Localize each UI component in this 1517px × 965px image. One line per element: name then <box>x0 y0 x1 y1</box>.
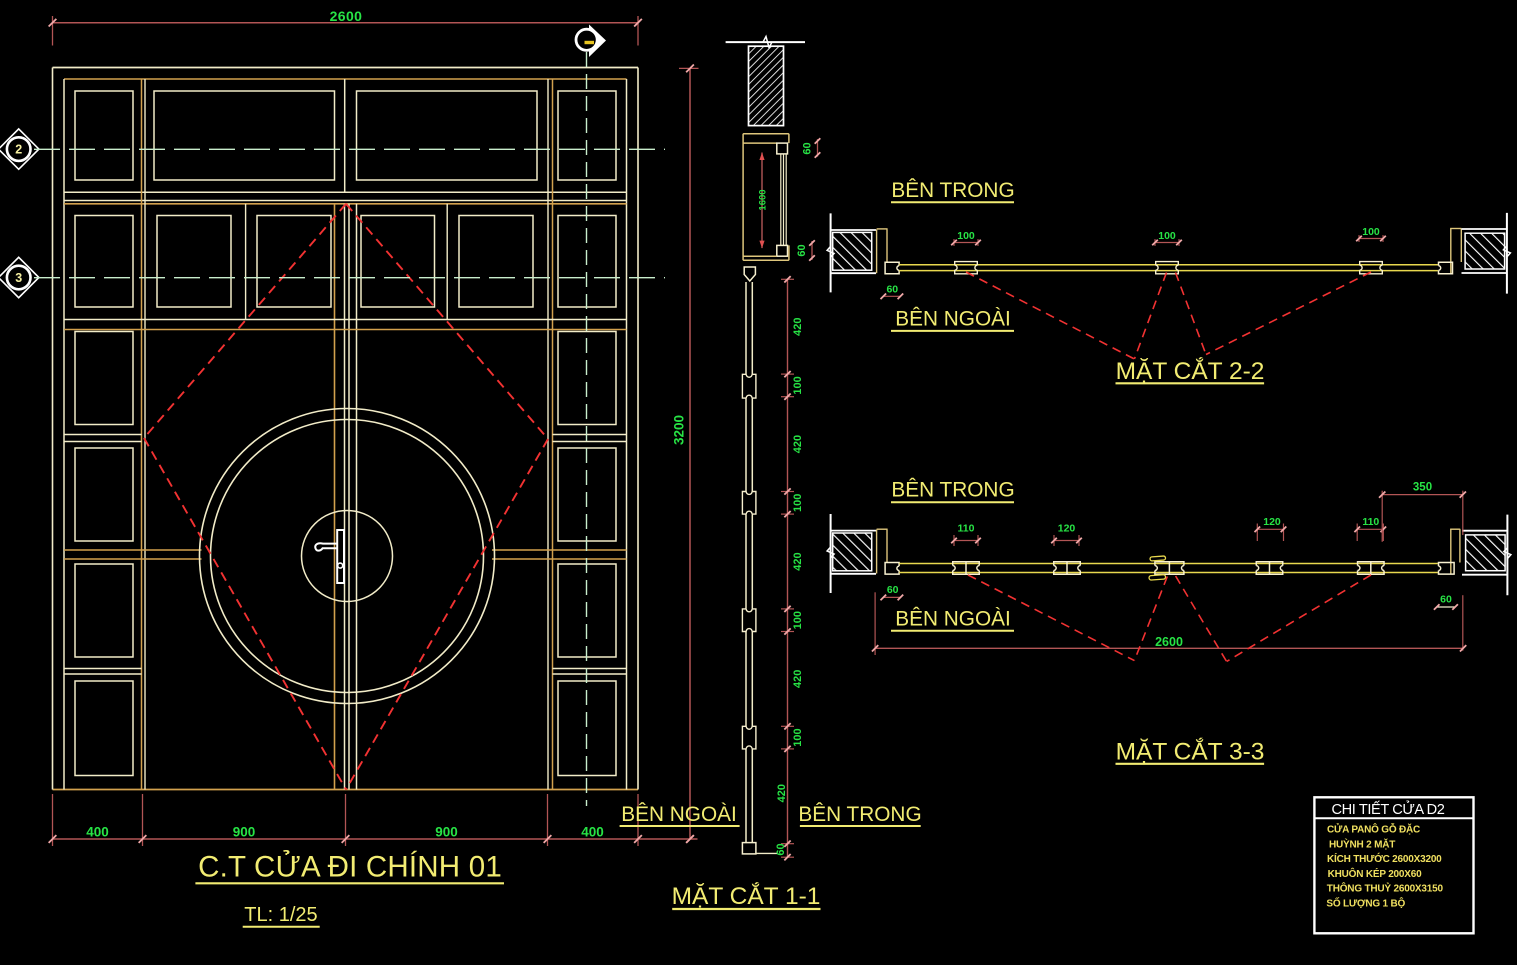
svg-text:420: 420 <box>776 784 788 802</box>
svg-text:THÔNG THUỶ 2600X3150: THÔNG THUỶ 2600X3150 <box>1327 882 1444 895</box>
svg-text:60: 60 <box>796 244 808 256</box>
svg-text:100: 100 <box>792 728 804 746</box>
svg-text:3200: 3200 <box>672 415 687 445</box>
svg-text:420: 420 <box>792 435 804 453</box>
svg-text:900: 900 <box>233 825 256 840</box>
svg-text:100: 100 <box>957 230 975 242</box>
svg-text:CHI TIẾT CỬA D2: CHI TIẾT CỬA D2 <box>1332 800 1445 818</box>
svg-text:350: 350 <box>1413 482 1432 494</box>
svg-text:C.T CỬA ĐI CHÍNH 01: C.T CỬA ĐI CHÍNH 01 <box>198 850 502 884</box>
svg-text:BÊN TRONG: BÊN TRONG <box>798 803 921 826</box>
svg-text:420: 420 <box>792 670 804 688</box>
svg-text:MẶT CẮT 2-2: MẶT CẮT 2-2 <box>1116 357 1265 385</box>
svg-text:60: 60 <box>775 843 787 855</box>
svg-text:SỐ LƯỢNG 1 BỘ: SỐ LƯỢNG 1 BỘ <box>1326 896 1405 910</box>
svg-text:BÊN TRONG: BÊN TRONG <box>891 179 1014 202</box>
svg-text:100: 100 <box>792 611 804 629</box>
svg-text:2600: 2600 <box>1155 635 1183 649</box>
svg-text:900: 900 <box>435 825 458 840</box>
svg-text:100: 100 <box>1362 226 1380 238</box>
svg-text:BÊN TRONG: BÊN TRONG <box>891 479 1014 502</box>
svg-text:100: 100 <box>792 376 804 394</box>
svg-text:100: 100 <box>1158 230 1176 242</box>
svg-text:BÊN NGOÀI: BÊN NGOÀI <box>895 608 1011 631</box>
svg-text:60: 60 <box>801 142 813 154</box>
svg-text:2: 2 <box>15 143 22 157</box>
svg-text:BÊN NGOÀI: BÊN NGOÀI <box>895 308 1011 331</box>
svg-text:HUỲNH 2 MẶT: HUỲNH 2 MẶT <box>1329 837 1395 850</box>
svg-text:100: 100 <box>792 494 804 512</box>
svg-text:60: 60 <box>886 284 898 296</box>
svg-text:120: 120 <box>1263 516 1281 528</box>
svg-text:400: 400 <box>581 825 604 840</box>
svg-text:3: 3 <box>15 271 22 285</box>
svg-text:CỬA PANÔ GỖ ĐẶC: CỬA PANÔ GỖ ĐẶC <box>1327 823 1420 836</box>
svg-text:60: 60 <box>887 584 899 596</box>
svg-text:KHUÔN KÉP 200X60: KHUÔN KÉP 200X60 <box>1328 867 1423 880</box>
svg-text:2600: 2600 <box>330 8 363 24</box>
svg-text:MẶT CẮT 1-1: MẶT CẮT 1-1 <box>672 882 821 910</box>
svg-text:120: 120 <box>1058 523 1076 535</box>
svg-text:1600: 1600 <box>758 189 769 210</box>
svg-text:400: 400 <box>86 825 109 840</box>
svg-text:110: 110 <box>1362 516 1379 528</box>
svg-text:420: 420 <box>792 318 804 336</box>
svg-text:110: 110 <box>958 523 975 535</box>
svg-text:MẶT CẮT 3-3: MẶT CẮT 3-3 <box>1116 738 1265 766</box>
svg-text:KÍCH THƯỚC 2600X3200: KÍCH THƯỚC 2600X3200 <box>1327 852 1442 865</box>
svg-text:TL: 1/25: TL: 1/25 <box>244 904 317 926</box>
svg-text:60: 60 <box>1440 594 1452 606</box>
svg-text:420: 420 <box>792 552 804 570</box>
svg-text:BÊN NGOÀI: BÊN NGOÀI <box>621 803 737 826</box>
